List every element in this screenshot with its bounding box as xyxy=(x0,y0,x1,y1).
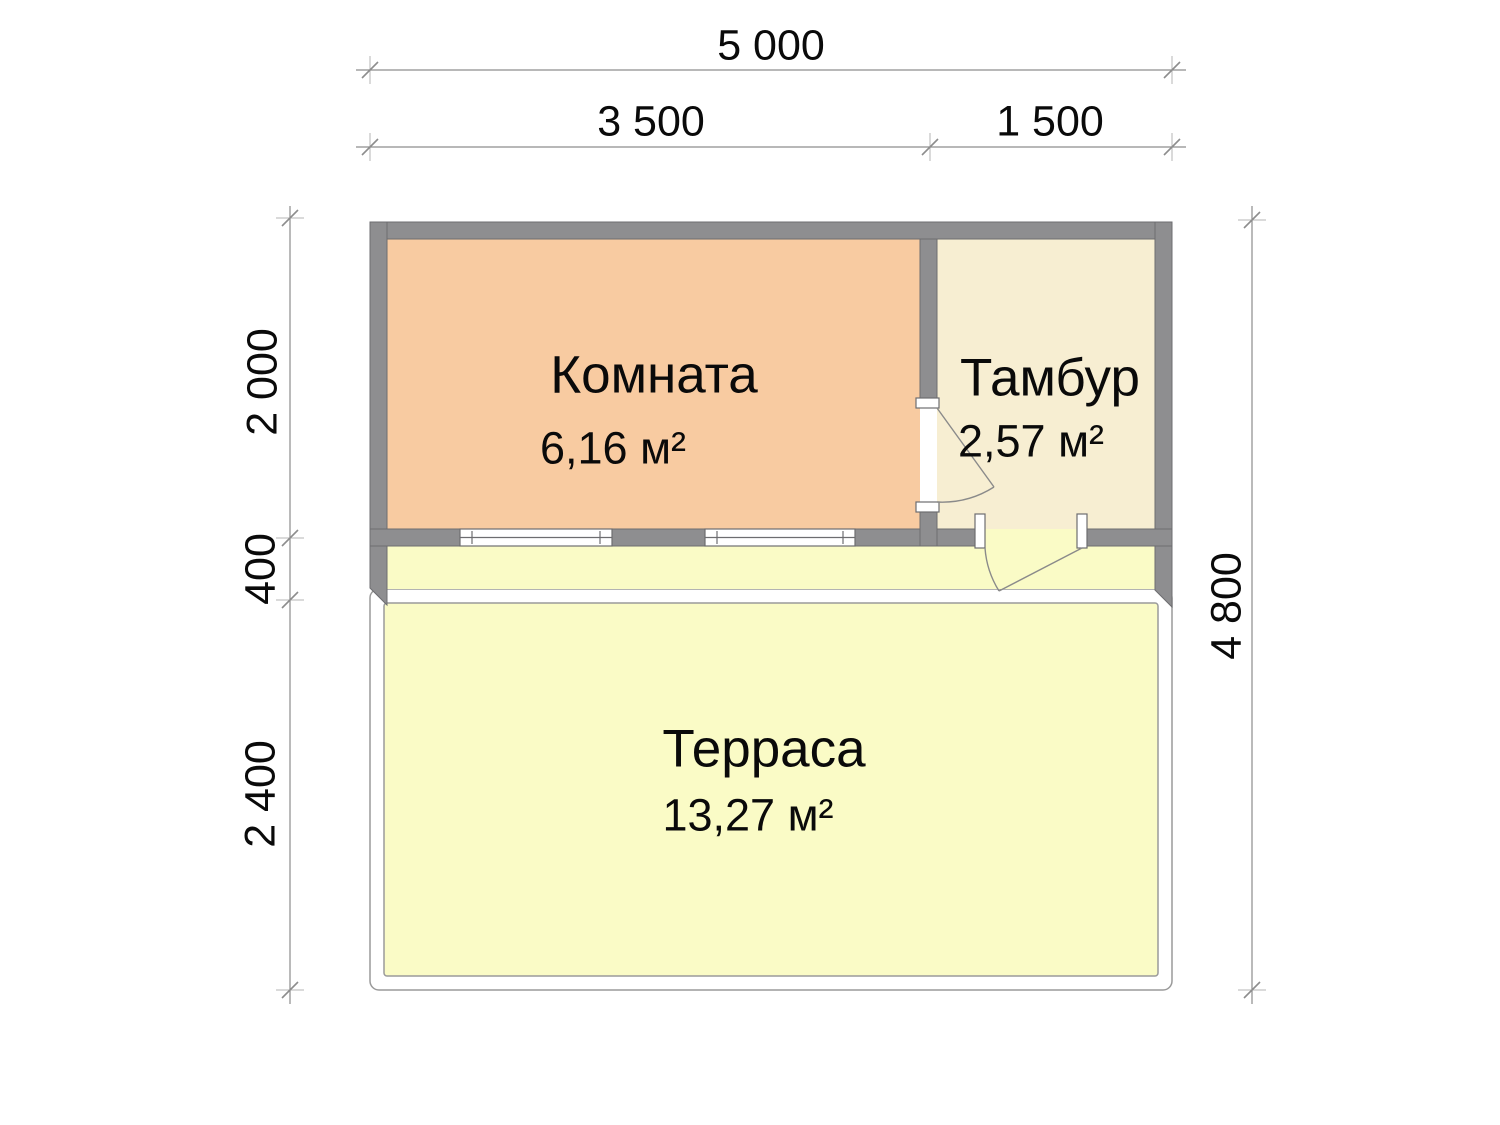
room-terrasa-area: 13,27 м² xyxy=(662,793,833,838)
wall-top xyxy=(370,222,1172,239)
exterior-door-threshold xyxy=(985,529,1077,547)
dimension-label-wall-offset: 400 xyxy=(240,533,283,605)
dimension-label-tambur-width: 1 500 xyxy=(996,101,1104,144)
dimension-label-room-depth: 2 000 xyxy=(242,328,285,436)
wall-partition-lower xyxy=(920,510,937,546)
wall-partition-upper xyxy=(920,239,937,400)
wall-bottom-segment-4 xyxy=(1087,529,1172,546)
room-terrasa-name: Терраса xyxy=(662,723,865,776)
room-komnata-name: Комната xyxy=(550,349,758,402)
dimension-label-terrace-depth: 2 400 xyxy=(240,740,283,848)
interior-door-jamb-top xyxy=(916,398,939,408)
room-komnata-area: 6,16 м² xyxy=(540,426,686,471)
room-tambur-name: Тамбур xyxy=(960,352,1140,405)
dimension-label-overall-depth: 4 800 xyxy=(1206,552,1249,660)
porch-strip-floor xyxy=(387,546,1155,589)
interior-door-jamb-bottom xyxy=(916,502,939,512)
floor-plan-canvas: 5 000 3 500 1 500 2 000 400 2 400 4 800 … xyxy=(0,0,1500,1125)
wall-bottom-segment-3 xyxy=(855,529,975,546)
dimension-line-left-depths xyxy=(276,206,304,1004)
wall-bottom-segment-2 xyxy=(612,529,705,546)
window-2 xyxy=(705,529,855,546)
wall-bottom-segment-1 xyxy=(370,529,460,546)
room-tambur-area: 2,57 м² xyxy=(958,419,1104,464)
wall-left xyxy=(370,222,387,605)
floor-plan-drawing xyxy=(0,0,1500,1125)
dimension-label-overall-width: 5 000 xyxy=(717,25,825,68)
wall-right xyxy=(1155,222,1172,607)
exterior-door-jamb-left xyxy=(975,514,985,548)
dimension-label-main-width: 3 500 xyxy=(597,101,705,144)
exterior-door-jamb-right xyxy=(1077,514,1087,548)
window-1 xyxy=(460,529,612,546)
